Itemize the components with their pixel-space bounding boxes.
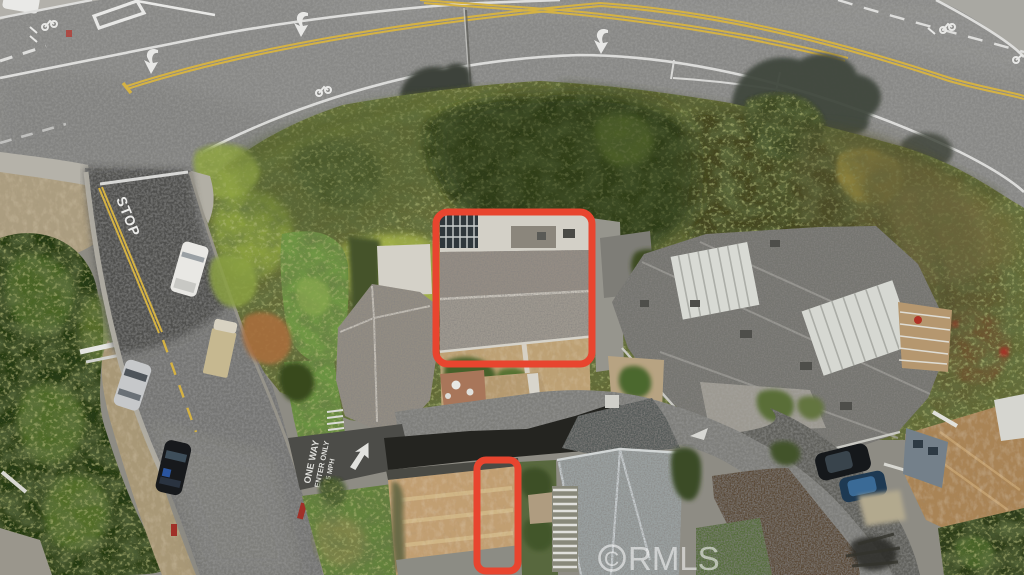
svg-text:RMLS: RMLS: [628, 540, 720, 575]
svg-text:C: C: [604, 548, 619, 571]
